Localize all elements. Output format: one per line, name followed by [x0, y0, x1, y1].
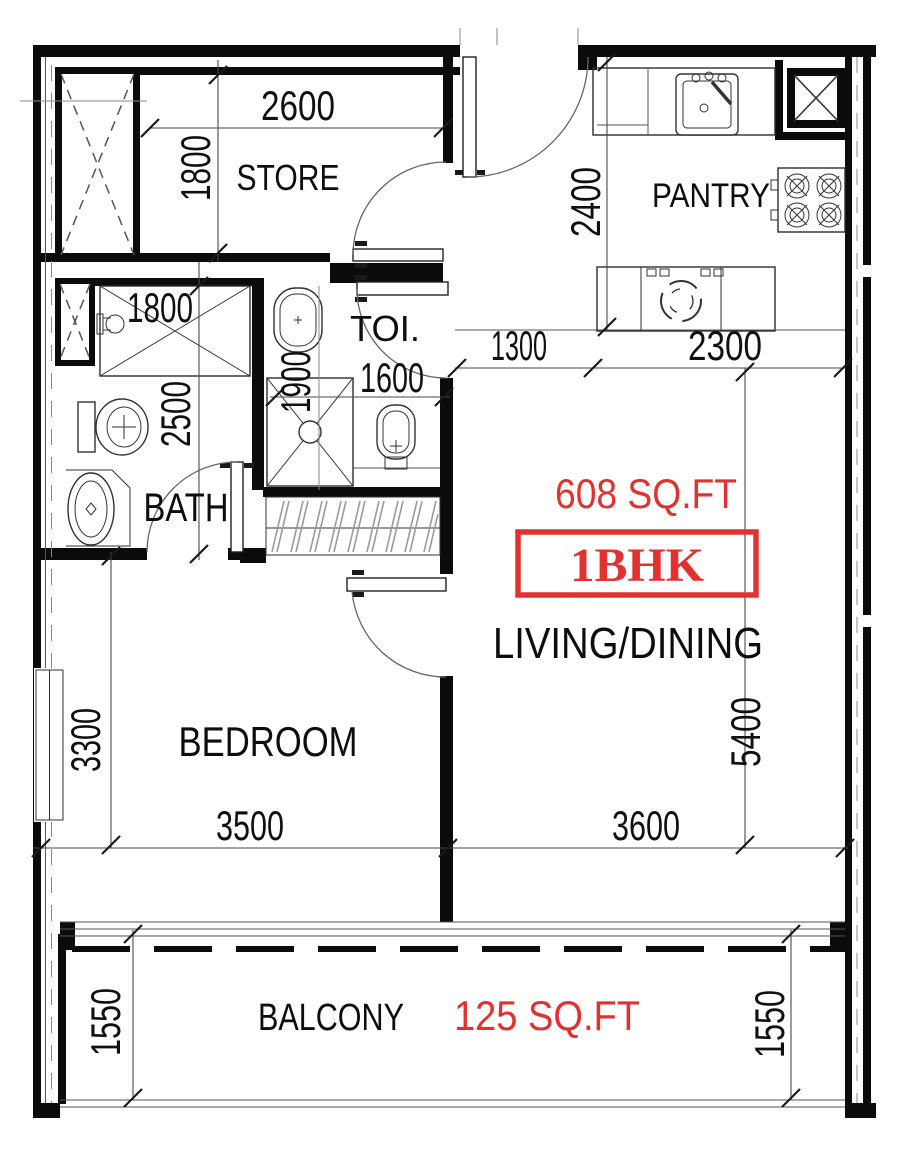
sink-icon [676, 74, 738, 135]
unit-type-label: 1BHK [570, 539, 704, 592]
dim-toilet-width: 1600 [360, 354, 424, 401]
dim-store-width: 2600 [261, 82, 335, 129]
dim-bath-depth: 2500 [152, 381, 199, 447]
dim-pantry-depth: 2400 [562, 167, 609, 237]
room-label-pantry: PANTRY [652, 177, 770, 215]
bath-wc-icon [78, 399, 148, 455]
room-label-store: STORE [237, 157, 340, 198]
pantry-sink-counter [593, 68, 775, 135]
entry-door [455, 57, 588, 177]
room-label-balcony: BALCONY [258, 997, 404, 1039]
dim-hall-width: 1300 [491, 322, 547, 369]
toilet-wc-icon [377, 405, 415, 469]
bath-basin-icon [66, 470, 130, 546]
stove-icon [771, 168, 845, 232]
dim-balcony-right: 1550 [746, 990, 793, 1058]
dim-pantry-width: 2300 [688, 322, 762, 369]
room-label-toilet: TOI. [350, 308, 420, 349]
room-labels: STORE PANTRY TOI. BATH LIVING/DINING BED… [144, 157, 771, 1039]
dim-bedroom-depth: 3300 [62, 708, 109, 772]
room-label-living: LIVING/DINING [493, 619, 763, 668]
bedroom-door [347, 570, 446, 677]
dim-toilet-depth: 1900 [272, 351, 319, 413]
floor-plan-page: 2600 1800 2400 1300 2300 1800 2500 1900 … [0, 0, 908, 1160]
dim-store-depth: 1800 [172, 135, 219, 201]
toilet-tub-icon [274, 288, 322, 352]
dim-living-width: 3600 [612, 802, 680, 849]
dim-living-depth: 5400 [722, 697, 769, 767]
dim-bath-width: 1800 [127, 284, 193, 331]
balcony-area-label: 125 SQ.FT [454, 992, 640, 1039]
room-label-bedroom: BEDROOM [179, 718, 358, 765]
floor-plan-drawing: 2600 1800 2400 1300 2300 1800 2500 1900 … [0, 0, 908, 1160]
total-area-label: 608 SQ.FT [555, 470, 737, 517]
wardrobe-hatch [266, 497, 440, 555]
dim-balcony-left: 1550 [82, 988, 129, 1056]
area-annotations: 608 SQ.FT 1BHK 125 SQ.FT [454, 470, 756, 1039]
store-door [353, 162, 446, 268]
dim-bedroom-width: 3500 [216, 802, 284, 849]
room-label-bath: BATH [144, 486, 229, 530]
